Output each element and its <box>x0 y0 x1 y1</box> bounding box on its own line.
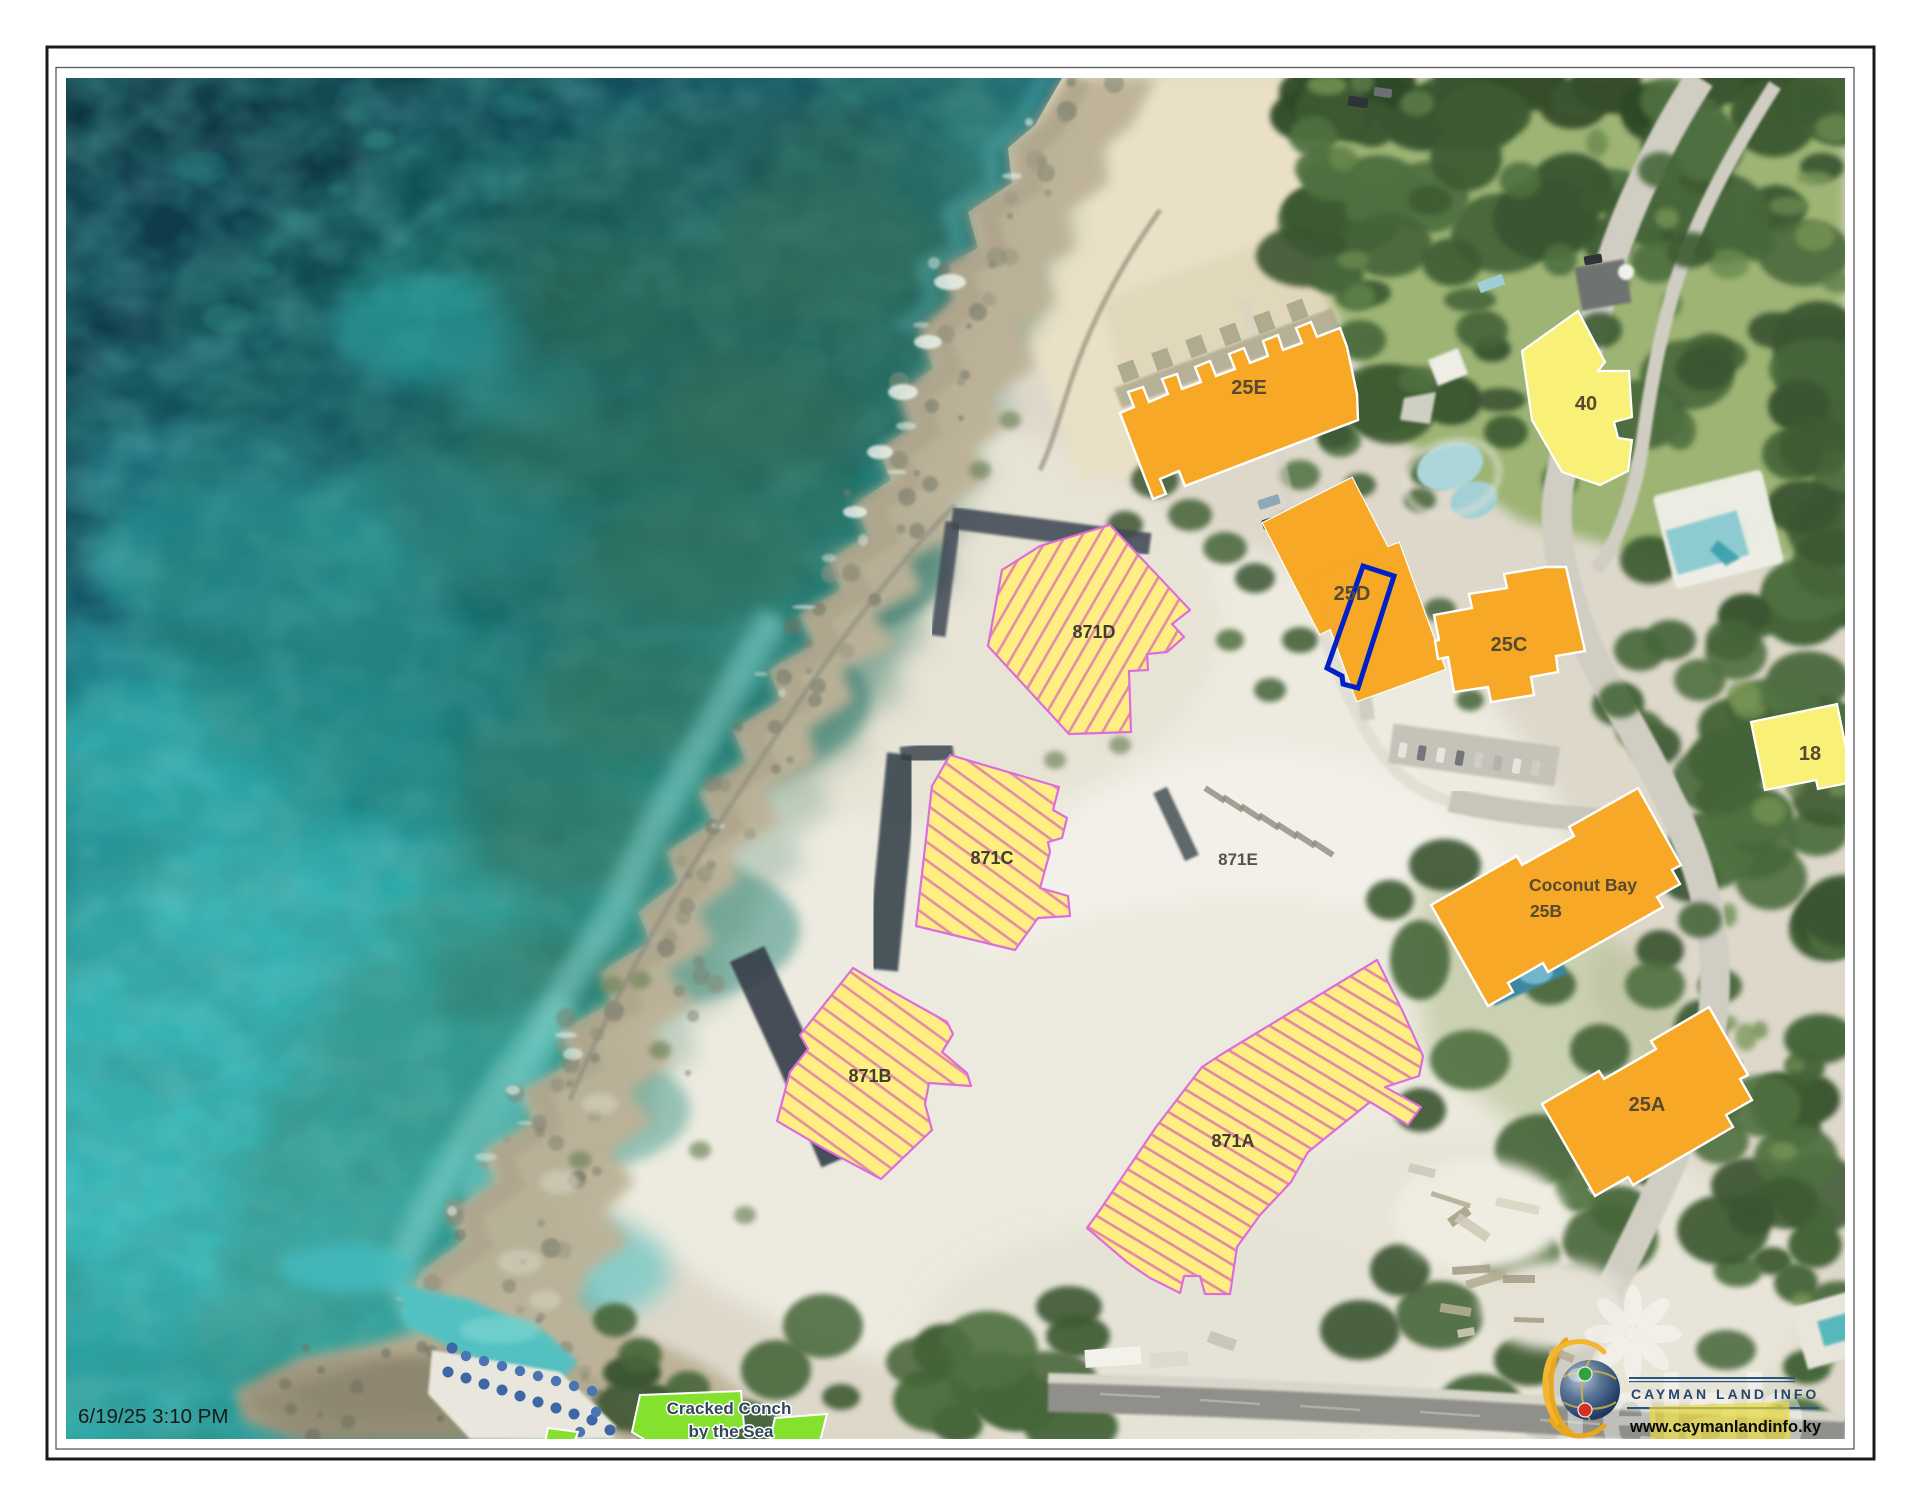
svg-text:25B: 25B <box>1530 901 1562 921</box>
svg-text:Cracked Conch: Cracked Conch <box>667 1399 792 1418</box>
svg-text:www.caymanlandinfo.ky: www.caymanlandinfo.ky <box>1629 1418 1822 1436</box>
svg-text:25C: 25C <box>1491 634 1528 656</box>
svg-text:18: 18 <box>1799 743 1821 765</box>
svg-text:25A: 25A <box>1629 1094 1666 1116</box>
svg-text:25E: 25E <box>1231 377 1267 399</box>
svg-text:25D: 25D <box>1334 583 1371 605</box>
svg-text:CAYMAN LAND INFO: CAYMAN LAND INFO <box>1631 1386 1819 1402</box>
svg-text:871C: 871C <box>970 848 1013 868</box>
svg-text:40: 40 <box>1575 393 1597 415</box>
svg-text:871E: 871E <box>1218 850 1258 869</box>
svg-text:6/19/25 3:10 PM: 6/19/25 3:10 PM <box>78 1405 228 1428</box>
svg-text:by the Sea: by the Sea <box>688 1422 774 1441</box>
svg-text:871A: 871A <box>1211 1131 1254 1151</box>
svg-text:Coconut Bay: Coconut Bay <box>1529 875 1637 895</box>
svg-text:871D: 871D <box>1072 622 1115 642</box>
svg-text:871B: 871B <box>848 1066 891 1086</box>
